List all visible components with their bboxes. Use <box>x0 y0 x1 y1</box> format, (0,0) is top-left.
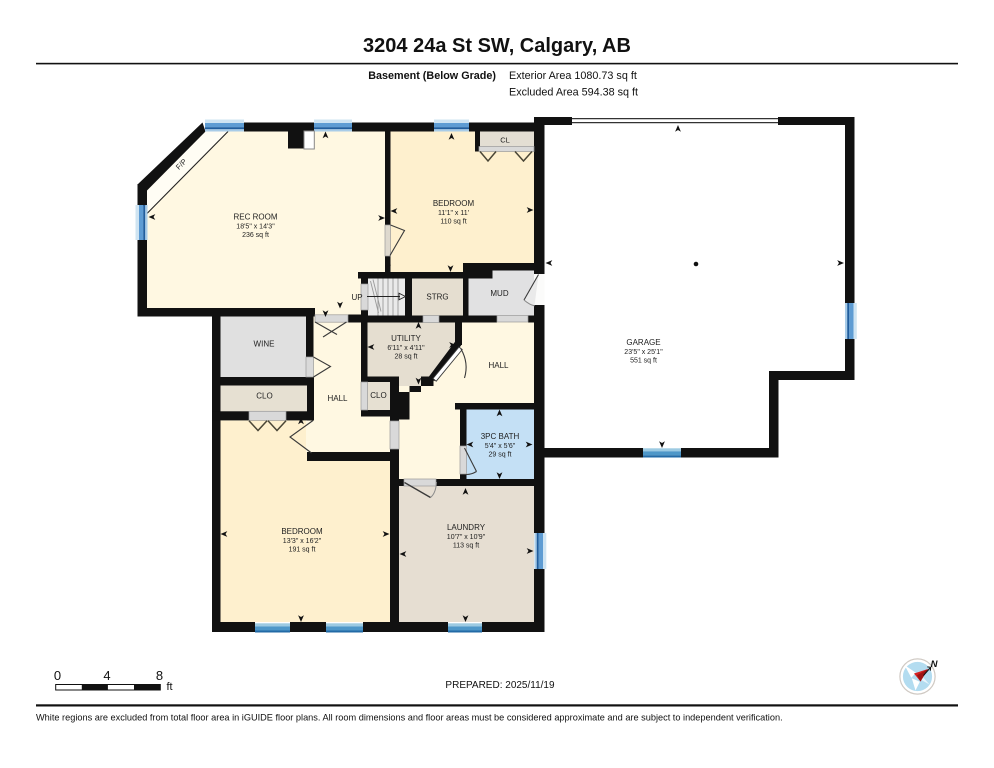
svg-text:113 sq ft: 113 sq ft <box>453 543 479 550</box>
svg-text:HALL: HALL <box>488 361 509 370</box>
svg-text:HALL: HALL <box>327 394 348 403</box>
svg-text:MUD: MUD <box>490 289 508 298</box>
svg-text:3PC BATH: 3PC BATH <box>481 432 520 441</box>
svg-text:CLO: CLO <box>256 392 272 401</box>
svg-text:13'3" x 16'2": 13'3" x 16'2" <box>283 538 322 545</box>
svg-text:551 sq ft: 551 sq ft <box>630 358 657 365</box>
svg-text:PREPARED: 2025/11/19: PREPARED: 2025/11/19 <box>445 680 555 691</box>
svg-text:191 sq ft: 191 sq ft <box>289 547 316 554</box>
svg-text:WINE: WINE <box>254 340 275 349</box>
svg-text:11'1" x 11': 11'1" x 11' <box>438 210 469 217</box>
svg-text:0: 0 <box>54 668 61 683</box>
svg-text:5'4" x 5'6": 5'4" x 5'6" <box>485 443 516 450</box>
svg-text:BEDROOM: BEDROOM <box>433 199 475 208</box>
svg-text:28 sq ft: 28 sq ft <box>395 354 418 361</box>
svg-text:29 sq ft: 29 sq ft <box>489 452 512 459</box>
svg-text:ft: ft <box>167 681 173 693</box>
svg-text:10'7" x 10'9": 10'7" x 10'9" <box>447 534 486 541</box>
svg-text:4: 4 <box>103 668 110 683</box>
svg-text:110 sq ft: 110 sq ft <box>440 219 466 226</box>
svg-text:3204 24a St SW, Calgary, AB: 3204 24a St SW, Calgary, AB <box>363 35 631 57</box>
svg-text:6'11" x 4'11": 6'11" x 4'11" <box>387 345 425 352</box>
svg-text:23'5" x 25'1": 23'5" x 25'1" <box>624 349 663 356</box>
svg-text:CL: CL <box>500 136 510 145</box>
svg-text:8: 8 <box>156 668 163 683</box>
svg-text:White regions are excluded fro: White regions are excluded from total fl… <box>36 713 783 723</box>
svg-text:LAUNDRY: LAUNDRY <box>447 523 486 532</box>
svg-text:N: N <box>931 659 939 670</box>
svg-text:18'5" x 14'3": 18'5" x 14'3" <box>236 224 275 231</box>
svg-text:236 sq ft: 236 sq ft <box>242 232 269 239</box>
svg-text:Exterior Area 1080.73 sq ft: Exterior Area 1080.73 sq ft <box>509 70 637 82</box>
svg-text:GARAGE: GARAGE <box>626 338 660 347</box>
svg-text:BEDROOM: BEDROOM <box>281 527 323 536</box>
svg-text:REC ROOM: REC ROOM <box>234 213 278 222</box>
svg-text:Excluded Area 594.38 sq ft: Excluded Area 594.38 sq ft <box>509 87 638 99</box>
svg-text:Basement (Below Grade): Basement (Below Grade) <box>368 70 496 82</box>
svg-text:UTILITY: UTILITY <box>391 334 421 343</box>
svg-text:CLO: CLO <box>370 391 386 400</box>
svg-text:STRG: STRG <box>426 293 448 302</box>
svg-text:UP: UP <box>351 293 362 302</box>
